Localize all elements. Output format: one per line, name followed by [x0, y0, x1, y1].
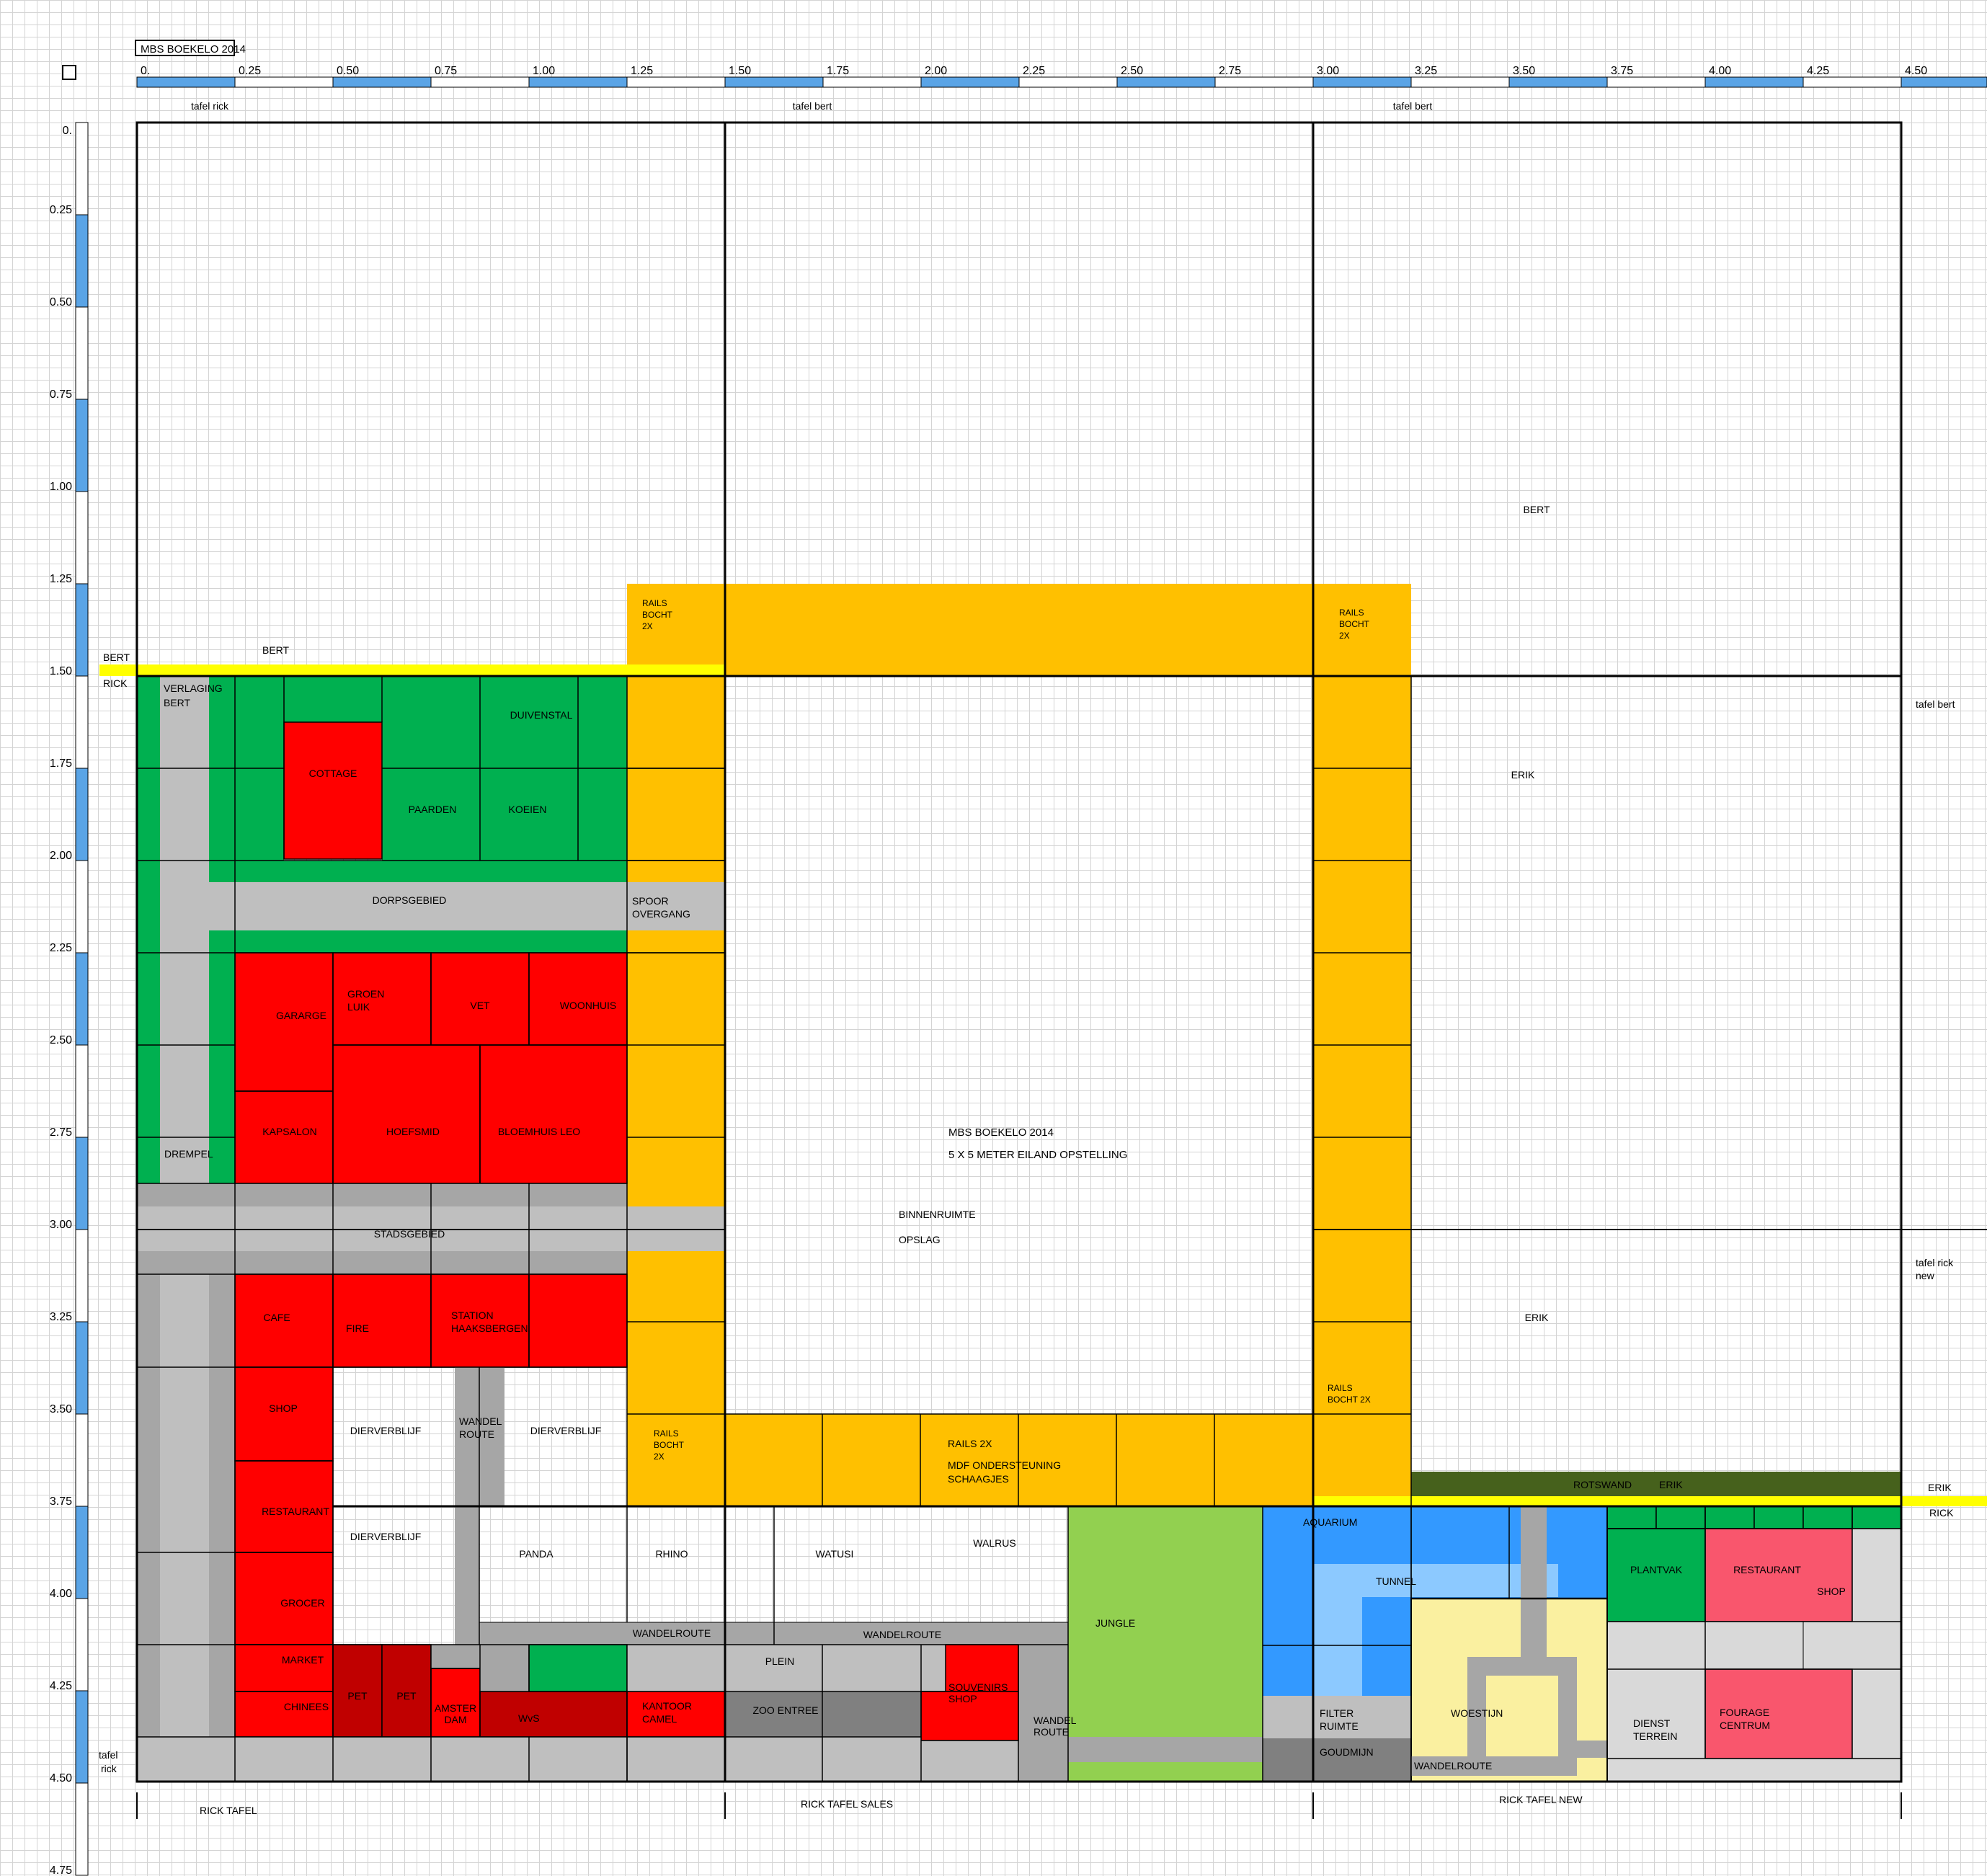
svg-text:tafel rick: tafel rick: [191, 100, 229, 112]
svg-text:0.75: 0.75: [50, 388, 72, 401]
svg-text:RUIMTE: RUIMTE: [1320, 1720, 1359, 1732]
svg-text:SCHAAGJES: SCHAAGJES: [948, 1473, 1009, 1485]
svg-text:HOEFSMID: HOEFSMID: [386, 1126, 440, 1137]
svg-text:STATION: STATION: [451, 1310, 494, 1321]
svg-text:FILTER: FILTER: [1320, 1707, 1353, 1719]
svg-text:RAILS: RAILS: [1328, 1383, 1353, 1393]
svg-text:WvS: WvS: [518, 1712, 540, 1724]
svg-text:ZOO ENTREE: ZOO ENTREE: [752, 1704, 818, 1716]
svg-text:GROCER: GROCER: [280, 1597, 324, 1609]
svg-text:2.75: 2.75: [1219, 65, 1241, 77]
svg-text:MBS BOEKELO 2014: MBS BOEKELO 2014: [141, 43, 246, 55]
svg-text:DORPSGEBIED: DORPSGEBIED: [373, 894, 447, 906]
svg-text:3.75: 3.75: [50, 1495, 72, 1508]
svg-text:CAMEL: CAMEL: [642, 1713, 677, 1725]
svg-text:OVERGANG: OVERGANG: [632, 908, 690, 920]
svg-text:ERIK: ERIK: [1525, 1312, 1549, 1323]
svg-text:RAILS 2X: RAILS 2X: [948, 1438, 992, 1449]
svg-text:0.: 0.: [141, 65, 150, 77]
svg-text:MDF ONDERSTEUNING: MDF ONDERSTEUNING: [948, 1459, 1061, 1471]
svg-text:4.00: 4.00: [50, 1588, 72, 1600]
svg-text:PLEIN: PLEIN: [765, 1655, 794, 1667]
svg-text:2.75: 2.75: [50, 1126, 72, 1139]
svg-text:RICK TAFEL SALES: RICK TAFEL SALES: [801, 1798, 893, 1810]
svg-text:2X: 2X: [1339, 631, 1350, 641]
svg-text:RESTAURANT: RESTAURANT: [262, 1506, 329, 1517]
svg-text:2.50: 2.50: [1121, 65, 1143, 77]
svg-text:1.00: 1.00: [533, 65, 555, 77]
svg-text:WANDEL: WANDEL: [1033, 1715, 1077, 1726]
svg-text:PET: PET: [396, 1690, 417, 1702]
svg-text:BERT: BERT: [164, 697, 191, 708]
svg-text:DIERVERBLIJF: DIERVERBLIJF: [350, 1425, 422, 1436]
svg-text:MBS BOEKELO 2014: MBS BOEKELO 2014: [948, 1126, 1054, 1139]
svg-text:BERT: BERT: [1523, 504, 1550, 515]
svg-text:FOURAGE: FOURAGE: [1720, 1707, 1769, 1718]
svg-text:BINNENRUIMTE: BINNENRUIMTE: [899, 1209, 976, 1220]
svg-text:3.50: 3.50: [50, 1403, 72, 1415]
svg-text:3.75: 3.75: [1611, 65, 1633, 77]
svg-text:PAARDEN: PAARDEN: [409, 804, 457, 815]
svg-text:tafel: tafel: [99, 1749, 117, 1761]
svg-text:2X: 2X: [654, 1452, 664, 1462]
svg-text:CAFE: CAFE: [263, 1312, 290, 1323]
svg-text:0.25: 0.25: [50, 204, 72, 216]
svg-text:RESTAURANT: RESTAURANT: [1733, 1564, 1801, 1575]
svg-text:FIRE: FIRE: [346, 1322, 369, 1334]
svg-text:KOEIEN: KOEIEN: [509, 804, 547, 815]
svg-text:TUNNEL: TUNNEL: [1376, 1575, 1416, 1587]
svg-text:KANTOOR: KANTOOR: [642, 1700, 692, 1712]
svg-text:2.25: 2.25: [50, 942, 72, 954]
svg-text:DREMPEL: DREMPEL: [164, 1148, 213, 1160]
svg-text:4.50: 4.50: [50, 1772, 72, 1784]
svg-text:2.00: 2.00: [50, 850, 72, 862]
svg-text:WANDEL: WANDEL: [459, 1415, 502, 1427]
svg-text:DIERVERBLIJF: DIERVERBLIJF: [350, 1531, 422, 1542]
svg-text:AMSTER: AMSTER: [435, 1702, 476, 1714]
svg-text:1.75: 1.75: [50, 757, 72, 770]
svg-text:JUNGLE: JUNGLE: [1095, 1617, 1135, 1629]
svg-text:LUIK: LUIK: [347, 1001, 370, 1013]
svg-text:2.00: 2.00: [925, 65, 947, 77]
svg-text:TERREIN: TERREIN: [1633, 1730, 1677, 1742]
svg-text:4.25: 4.25: [50, 1680, 72, 1692]
svg-text:MARKET: MARKET: [282, 1654, 324, 1666]
svg-text:tafel bert: tafel bert: [1393, 100, 1433, 112]
svg-text:RICK: RICK: [1929, 1507, 1954, 1519]
svg-text:PLANTVAK: PLANTVAK: [1630, 1564, 1683, 1575]
svg-text:ROTSWAND: ROTSWAND: [1573, 1479, 1632, 1490]
svg-text:BOCHT: BOCHT: [1339, 619, 1370, 629]
svg-text:ERIK: ERIK: [1928, 1482, 1952, 1493]
svg-text:DIENST: DIENST: [1633, 1717, 1671, 1729]
svg-text:0.25: 0.25: [239, 65, 261, 77]
svg-text:BERT: BERT: [262, 644, 290, 656]
svg-text:OPSLAG: OPSLAG: [899, 1234, 941, 1245]
svg-text:ROUTE: ROUTE: [459, 1428, 494, 1440]
svg-text:3.50: 3.50: [1513, 65, 1535, 77]
svg-text:1.50: 1.50: [50, 665, 72, 677]
svg-text:DIERVERBLIJF: DIERVERBLIJF: [530, 1425, 602, 1436]
svg-text:new: new: [1916, 1270, 1935, 1281]
svg-text:0.50: 0.50: [337, 65, 359, 77]
svg-text:WATUSI: WATUSI: [816, 1548, 854, 1560]
svg-text:WANDELROUTE: WANDELROUTE: [863, 1629, 941, 1640]
svg-text:RICK TAFEL NEW: RICK TAFEL NEW: [1499, 1794, 1583, 1805]
svg-text:RICK: RICK: [103, 677, 128, 689]
svg-text:STADSGEBIED: STADSGEBIED: [374, 1228, 445, 1240]
svg-text:4.75: 4.75: [50, 1864, 72, 1876]
svg-text:ERIK: ERIK: [1659, 1479, 1683, 1490]
svg-text:5 X 5 METER EILAND OPSTELLING: 5 X 5 METER EILAND OPSTELLING: [948, 1149, 1127, 1161]
svg-text:0.50: 0.50: [50, 296, 72, 308]
svg-text:DUIVENSTAL: DUIVENSTAL: [510, 709, 573, 721]
svg-text:GOUDMIJN: GOUDMIJN: [1320, 1746, 1374, 1758]
svg-text:rick: rick: [101, 1763, 117, 1774]
svg-text:SPOOR: SPOOR: [632, 895, 669, 907]
svg-text:0.75: 0.75: [435, 65, 457, 77]
svg-text:tafel bert: tafel bert: [793, 100, 832, 112]
svg-text:1.50: 1.50: [729, 65, 751, 77]
svg-text:1.25: 1.25: [631, 65, 653, 77]
svg-text:PET: PET: [347, 1690, 368, 1702]
svg-text:RAILS: RAILS: [642, 598, 667, 608]
svg-text:WALRUS: WALRUS: [973, 1537, 1015, 1549]
svg-text:1.25: 1.25: [50, 573, 72, 585]
svg-text:HAAKSBERGEN: HAAKSBERGEN: [451, 1322, 528, 1334]
svg-text:3.00: 3.00: [50, 1219, 72, 1231]
svg-text:4.00: 4.00: [1709, 65, 1731, 77]
svg-text:1.00: 1.00: [50, 481, 72, 493]
svg-text:CHINEES: CHINEES: [284, 1701, 329, 1712]
svg-text:tafel rick: tafel rick: [1916, 1257, 1954, 1268]
svg-text:GROEN: GROEN: [347, 988, 384, 1000]
svg-text:RAILS: RAILS: [1339, 608, 1364, 618]
svg-text:3.25: 3.25: [1415, 65, 1437, 77]
svg-text:BOCHT: BOCHT: [642, 610, 673, 620]
svg-text:VERLAGING: VERLAGING: [164, 683, 223, 694]
svg-text:DAM: DAM: [444, 1714, 466, 1725]
svg-text:WANDELROUTE: WANDELROUTE: [1414, 1760, 1492, 1771]
svg-text:BOCHT 2X: BOCHT 2X: [1328, 1395, 1371, 1405]
svg-text:AQUARIUM: AQUARIUM: [1303, 1516, 1357, 1528]
svg-text:4.25: 4.25: [1807, 65, 1829, 77]
svg-text:4.50: 4.50: [1905, 65, 1927, 77]
svg-text:BOCHT: BOCHT: [654, 1440, 685, 1450]
svg-text:SHOP: SHOP: [269, 1402, 298, 1414]
svg-text:BLOEMHUIS LEO: BLOEMHUIS LEO: [498, 1126, 580, 1137]
svg-text:RICK TAFEL: RICK TAFEL: [200, 1805, 257, 1816]
svg-text:VET: VET: [470, 1000, 490, 1011]
svg-text:SOUVENIRS: SOUVENIRS: [948, 1681, 1008, 1693]
svg-text:WANDELROUTE: WANDELROUTE: [633, 1627, 711, 1639]
svg-text:2X: 2X: [642, 621, 653, 631]
svg-text:COTTAGE: COTTAGE: [309, 768, 357, 779]
svg-text:0.: 0.: [63, 125, 72, 137]
svg-text:3.25: 3.25: [50, 1311, 72, 1323]
svg-text:ERIK: ERIK: [1511, 769, 1535, 781]
svg-text:BERT: BERT: [103, 652, 130, 663]
svg-text:SHOP: SHOP: [948, 1693, 977, 1704]
svg-text:2.25: 2.25: [1023, 65, 1045, 77]
svg-text:GARARGE: GARARGE: [276, 1010, 326, 1021]
svg-text:CENTRUM: CENTRUM: [1720, 1720, 1770, 1731]
svg-text:WOESTIJN: WOESTIJN: [1451, 1707, 1503, 1719]
svg-text:WOONHUIS: WOONHUIS: [560, 1000, 617, 1011]
svg-text:SHOP: SHOP: [1817, 1586, 1846, 1597]
svg-text:KAPSALON: KAPSALON: [262, 1126, 316, 1137]
svg-text:PANDA: PANDA: [519, 1548, 554, 1560]
svg-text:1.75: 1.75: [827, 65, 849, 77]
svg-text:RHINO: RHINO: [655, 1548, 688, 1560]
svg-text:ROUTE: ROUTE: [1033, 1726, 1069, 1738]
svg-text:RAILS: RAILS: [654, 1428, 679, 1439]
svg-text:2.50: 2.50: [50, 1034, 72, 1046]
svg-text:3.00: 3.00: [1317, 65, 1339, 77]
svg-text:tafel bert: tafel bert: [1916, 698, 1955, 710]
